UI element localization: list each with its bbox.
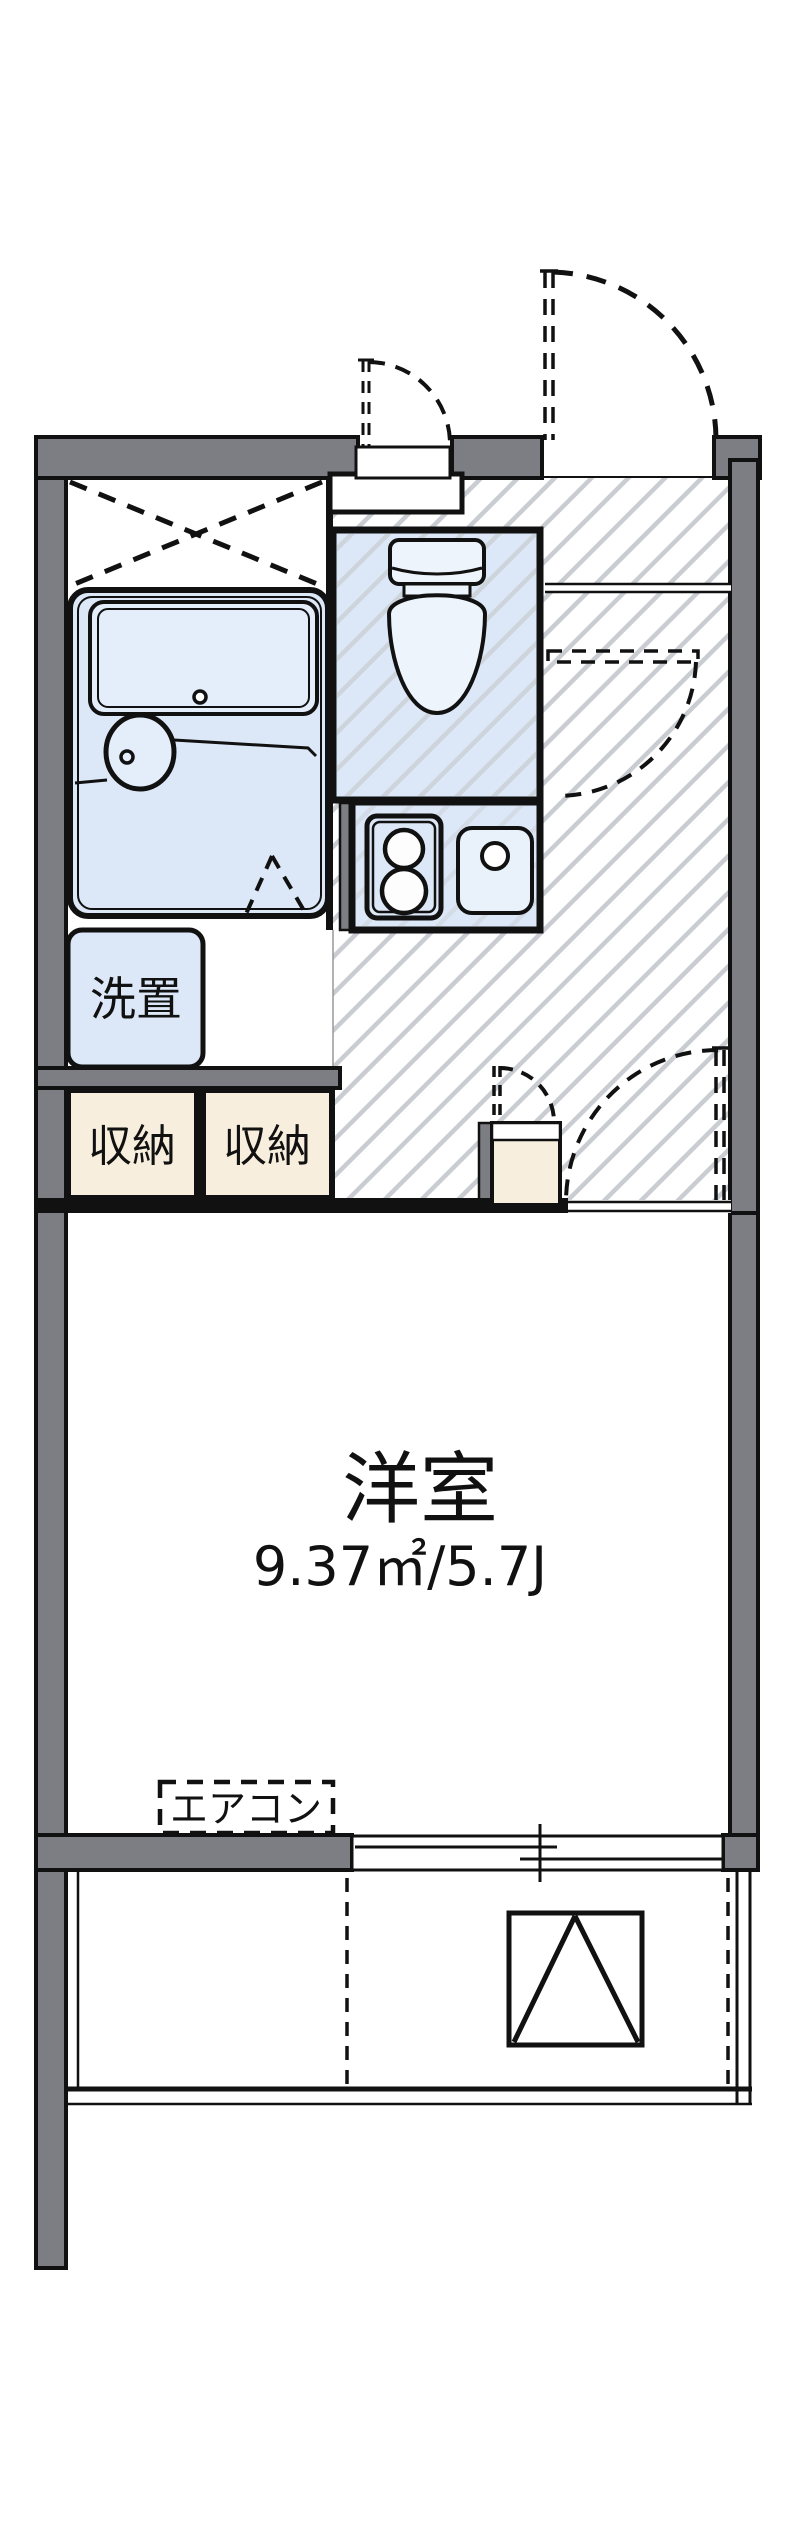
evacuation-hatch-icon <box>509 1913 642 2045</box>
left-wall <box>36 437 66 2268</box>
floor-plan-drawing: 洗置 収納 収納 洋室 9.37㎡/5.7J エアコン <box>0 0 800 2539</box>
top-wall-a <box>36 437 358 478</box>
right-wall-lower <box>730 1213 758 1870</box>
washer-space: 洗置 <box>68 930 203 1067</box>
room-name-label: 洋室 <box>342 1445 498 1535</box>
stove-icon <box>367 816 441 918</box>
unit-bath <box>70 590 328 916</box>
bottom-wall-left <box>36 1835 352 1870</box>
mid-wall-band <box>36 1068 340 1088</box>
balcony <box>66 1870 752 2104</box>
bottom-wall-right-pier <box>723 1835 758 1870</box>
top-wall-b <box>452 437 542 478</box>
room-door-threshold <box>568 1200 731 1213</box>
kitchen-counter <box>352 802 540 930</box>
bathtub-icon <box>90 602 317 714</box>
storage-closet-left: 収納 <box>68 1090 197 1198</box>
right-wall-upper <box>730 460 758 1213</box>
entrance-step <box>545 583 731 593</box>
main-room: 洋室 9.37㎡/5.7J <box>253 1445 547 1598</box>
kitchen-sink-icon <box>458 828 532 913</box>
aircon-label: エアコン <box>170 1787 322 1831</box>
storage-left-label: 収納 <box>88 1121 176 1172</box>
water-heater-box <box>492 1123 560 1205</box>
toilet-room <box>333 530 540 800</box>
entrance-door-swing <box>540 271 716 440</box>
floor-plan-page: 洗置 収納 収納 洋室 9.37㎡/5.7J エアコン <box>0 0 800 2539</box>
washer-label: 洗置 <box>90 972 182 1026</box>
storage-closet-right: 収納 <box>203 1090 332 1198</box>
room-area-label: 9.37㎡/5.7J <box>253 1535 547 1598</box>
sliding-window <box>352 1824 723 1882</box>
storage-right-label: 収納 <box>223 1121 311 1172</box>
aircon-space: エアコン <box>160 1782 333 1833</box>
toilet-icon <box>389 540 485 713</box>
niche-door-swing <box>358 360 450 446</box>
